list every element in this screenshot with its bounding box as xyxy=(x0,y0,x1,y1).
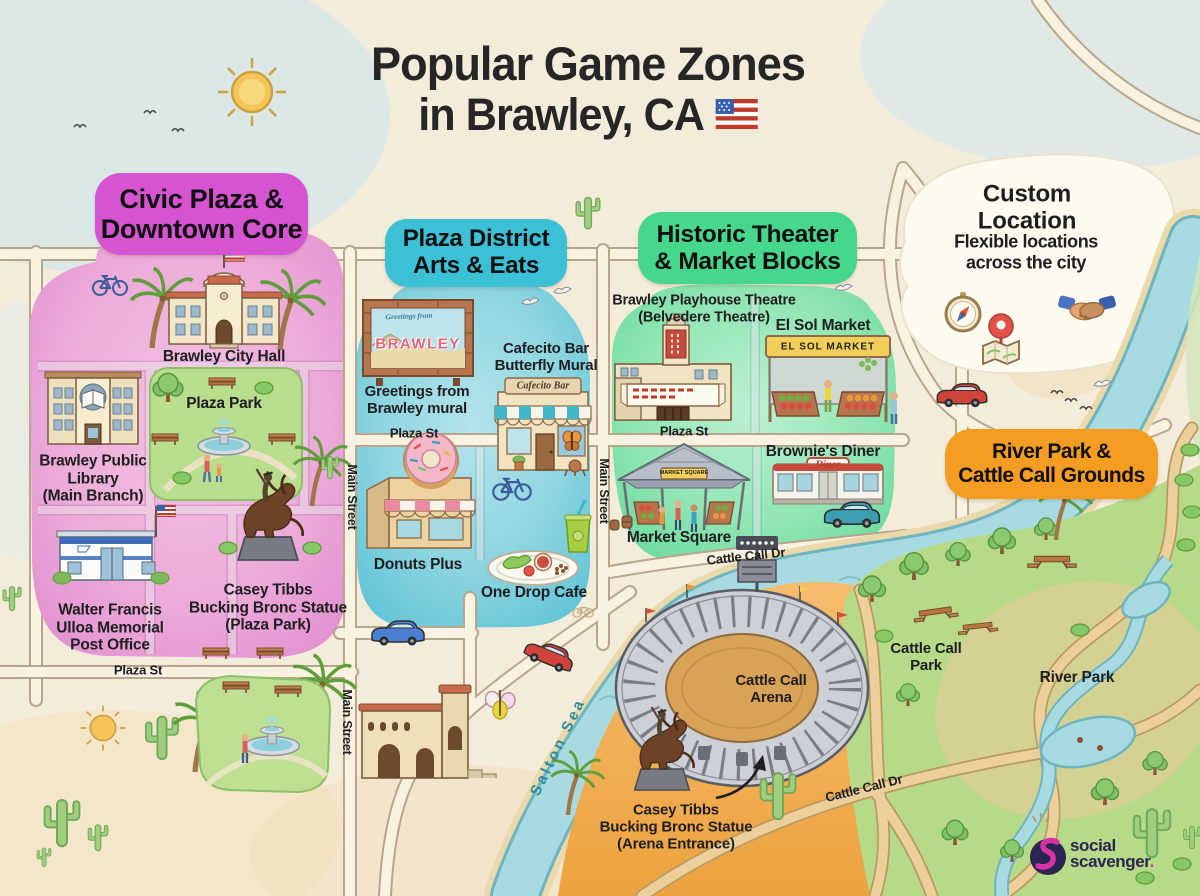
page-title: Popular Game Zones in Brawley, CA xyxy=(362,38,814,139)
blue-car-icon xyxy=(372,621,424,646)
brawley-public-library-illustration xyxy=(45,372,141,444)
us-flag-icon xyxy=(716,99,758,129)
zone-header-civic: Civic Plaza & Downtown Core xyxy=(95,173,308,255)
butterfly-mural-icon xyxy=(563,431,581,451)
zone-header-historic: Historic Theater & Market Blocks xyxy=(638,212,857,284)
title-line-2: in Brawley, CA xyxy=(418,90,704,140)
brownies-diner-illustration xyxy=(773,458,883,504)
social-scavenger-logo-mark xyxy=(1030,839,1066,875)
cafecito-bar-illustration xyxy=(495,378,591,476)
logo-word-2: scavenger xyxy=(1070,852,1150,871)
dove-icon xyxy=(835,284,852,290)
title-line-1: Popular Game Zones xyxy=(371,38,805,90)
bird-icon xyxy=(1065,399,1077,401)
butterfly-icon xyxy=(483,689,517,719)
brawley-game-zones-map: Popular Game Zones in Brawley, CA Civic … xyxy=(0,0,1200,896)
social-scavenger-logo-text: social scavenger. xyxy=(1070,838,1154,869)
zone-header-plaza-district: Plaza District Arts & Eats xyxy=(385,219,567,287)
pocket-park-illustration xyxy=(196,676,330,792)
zone-header-river-grounds: River Park & Cattle Call Grounds xyxy=(945,429,1158,499)
greetings-mural-illustration xyxy=(363,300,473,386)
plaza-park-illustration xyxy=(150,368,302,500)
dove-icon xyxy=(554,287,571,293)
red-car-icon xyxy=(937,384,986,407)
logo-dot: . xyxy=(1150,852,1154,871)
donut-icon xyxy=(404,433,458,489)
